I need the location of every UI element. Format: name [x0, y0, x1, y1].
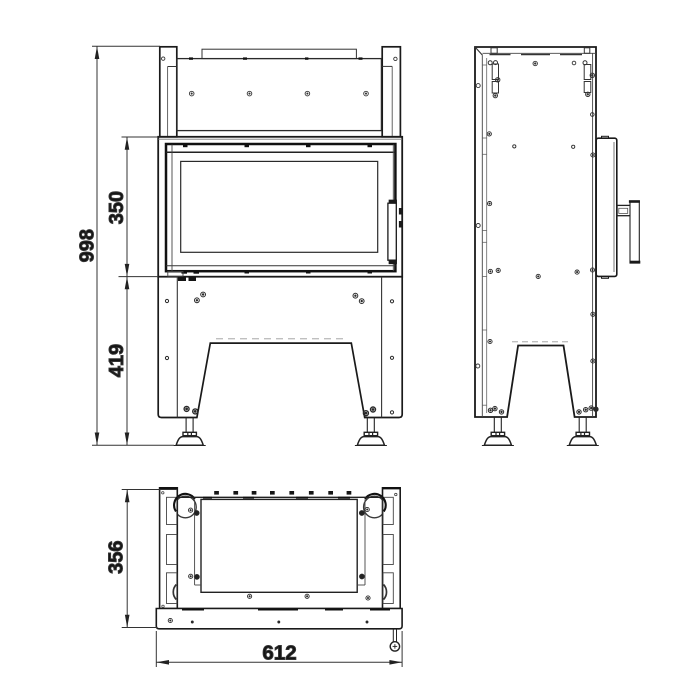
svg-text:998: 998 — [76, 229, 98, 262]
svg-text:356: 356 — [106, 541, 128, 574]
svg-text:612: 612 — [262, 642, 296, 665]
svg-text:350: 350 — [106, 191, 128, 224]
svg-text:419: 419 — [106, 344, 128, 377]
